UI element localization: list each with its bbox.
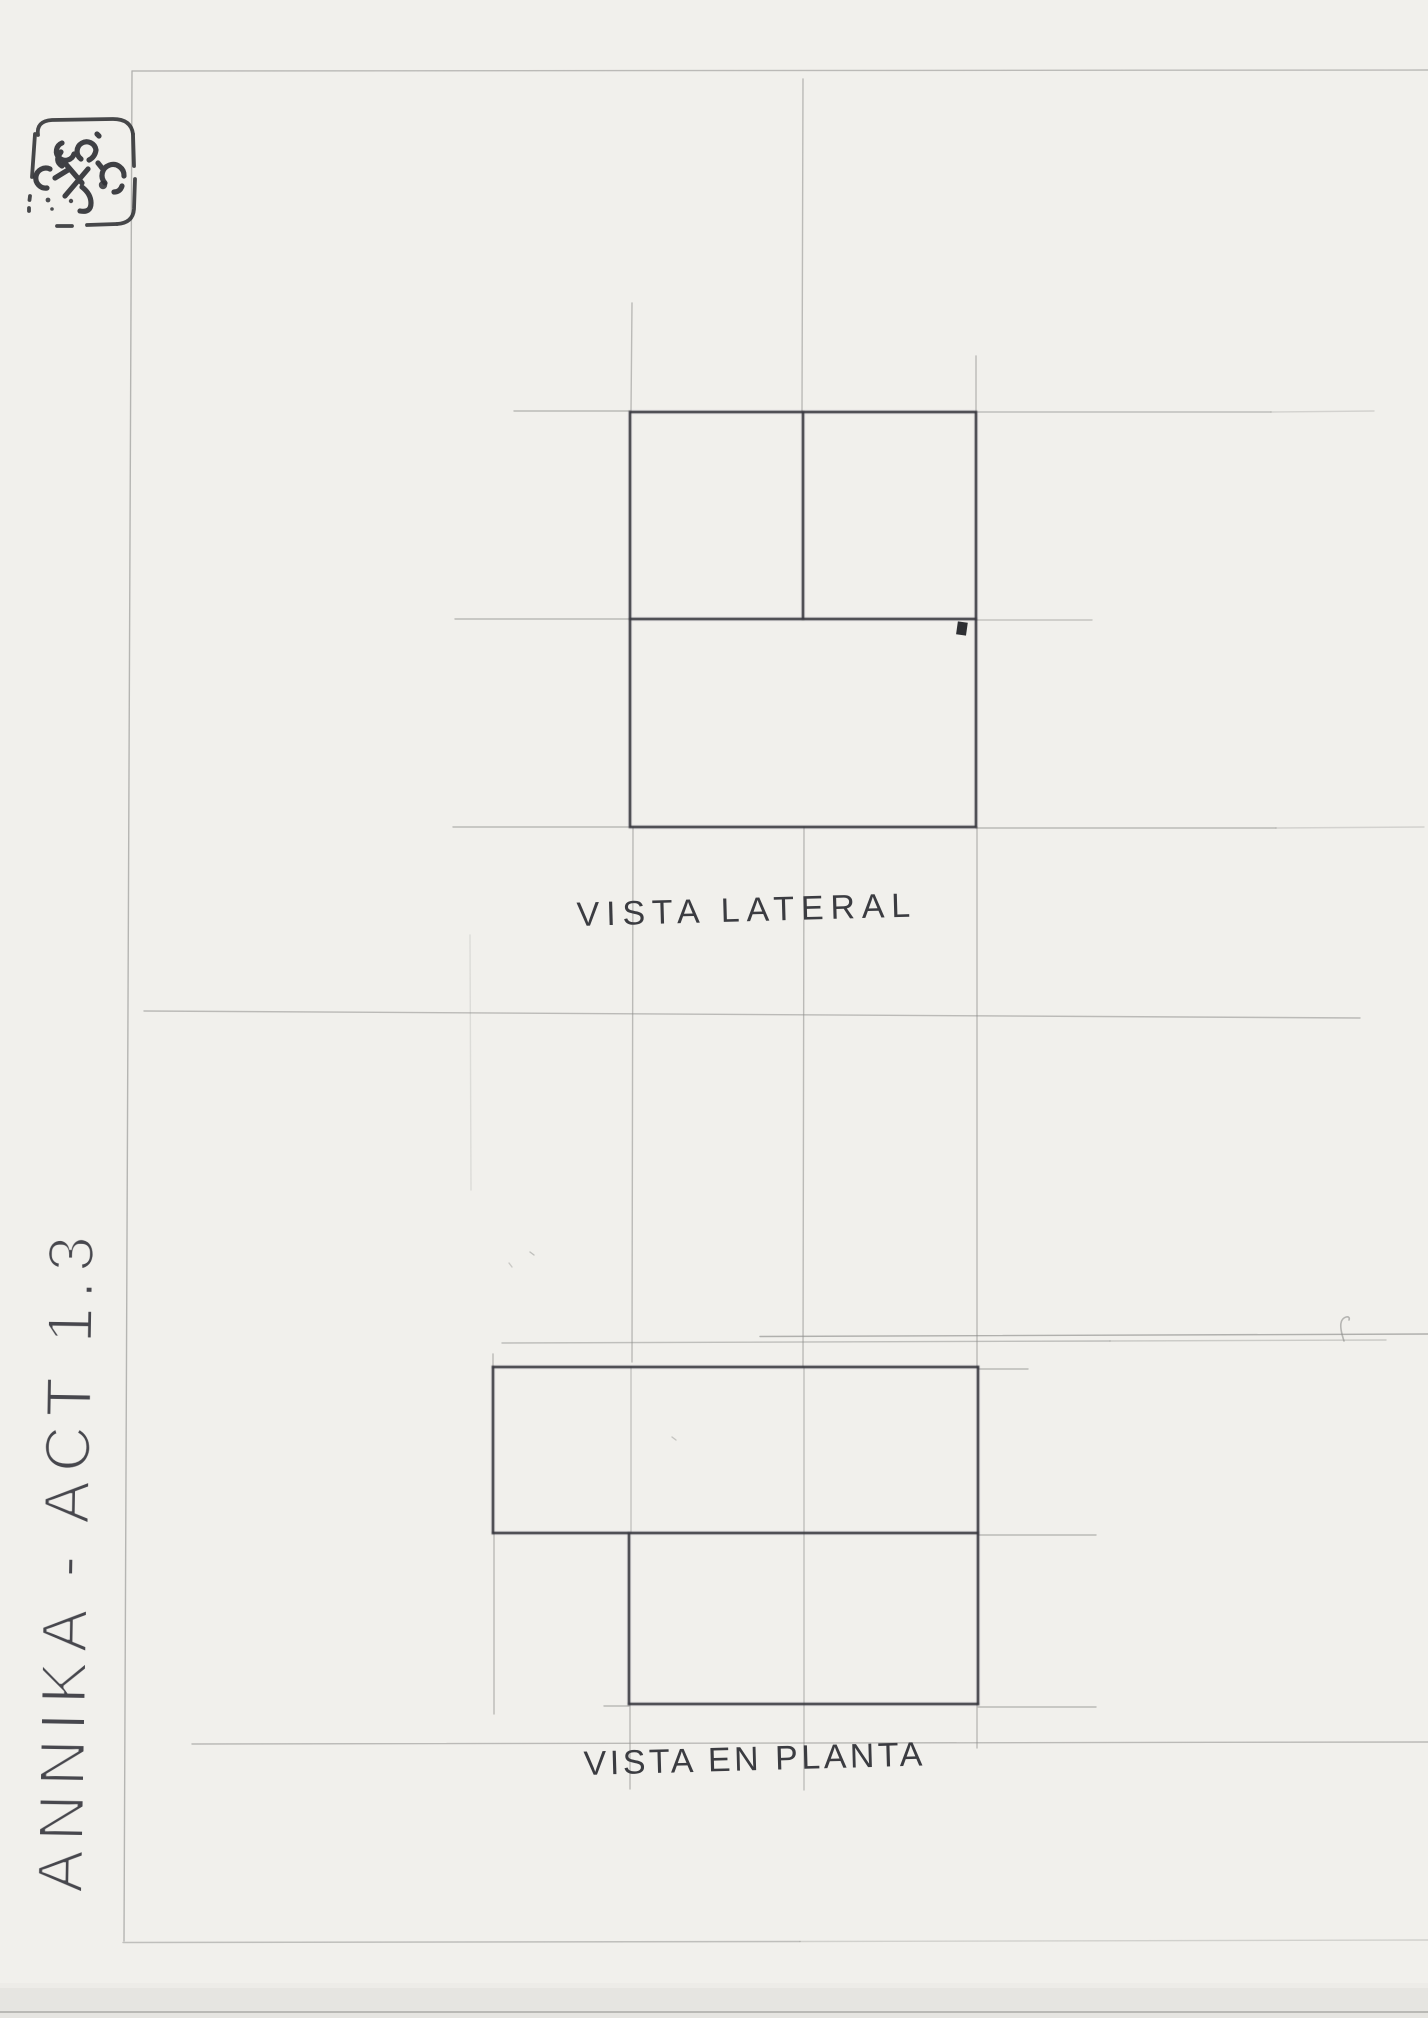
svg-text:ANNIKA - ACT 1.3: ANNIKA - ACT 1.3 <box>24 1226 108 1893</box>
